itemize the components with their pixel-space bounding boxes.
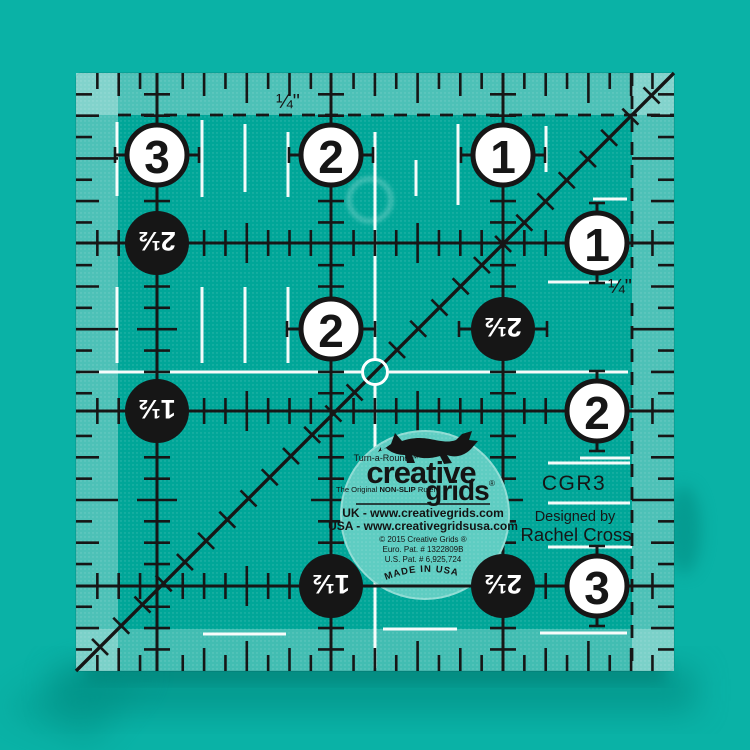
ruler-number-circle: 3 (567, 556, 627, 616)
ruler-number-label: 2½ (138, 226, 176, 256)
ruler-number-circle: 1 (473, 125, 533, 185)
usa-url-line: USA - www.creativegridsusa.com (328, 519, 518, 533)
designed-by-label: Designed by (535, 509, 616, 525)
ruler-number-circle: 2½ (471, 554, 535, 618)
ruler-number-circle: 2½ (471, 297, 535, 361)
ruler-number-label: 1½ (312, 569, 350, 599)
ruler-number-label: 2½ (484, 312, 522, 342)
ruler-number-label: 3 (144, 131, 170, 183)
ruler-product-graphic: Turn-a-Round™ creative The Original NON-… (0, 0, 750, 750)
brand-word-grids: grids (425, 475, 489, 506)
ruler-number-circle: 1½ (299, 554, 363, 618)
ruler-number-label: 2 (318, 305, 344, 357)
ruler-number-label: 3 (584, 562, 610, 614)
uk-url-line: UK - www.creativegrids.com (342, 506, 504, 520)
ruler-number-circle: 3 (127, 125, 187, 185)
copyright-line: © 2015 Creative Grids ® (379, 535, 466, 544)
ruler-number-circle: 2½ (125, 211, 189, 275)
ruler-number-label: 1 (584, 219, 610, 271)
quarter-inch-label-right: ¼" (608, 276, 632, 298)
product-photo-stage: Turn-a-Round™ creative The Original NON-… (0, 0, 750, 750)
designer-name: Rachel Cross (520, 524, 631, 545)
quarter-inch-label-top: ¼" (276, 91, 300, 113)
ruler-number-circle: 2 (301, 125, 361, 185)
brand-tagline: The Original NON-SLIP Ruler (336, 485, 437, 494)
ruler-number-label: 2½ (484, 569, 522, 599)
ruler-number-label: 2 (584, 387, 610, 439)
ruler-number-circle: 2 (567, 381, 627, 441)
ruler-number-circle: 2 (301, 299, 361, 359)
model-number: CGR3 (542, 472, 606, 495)
ruler-number-label: 2 (318, 131, 344, 183)
euro-patent-line: Euro. Pat. # 1322809B (383, 545, 464, 554)
ruler-number-label: 1½ (138, 394, 176, 424)
ruler-number-label: 1 (490, 131, 516, 183)
registered-mark: ® (489, 479, 495, 488)
us-patent-line: U.S. Pat. # 6,925,724 (385, 555, 462, 564)
ruler-number-circle: 1½ (125, 379, 189, 443)
ruler-number-circle: 1 (567, 213, 627, 273)
